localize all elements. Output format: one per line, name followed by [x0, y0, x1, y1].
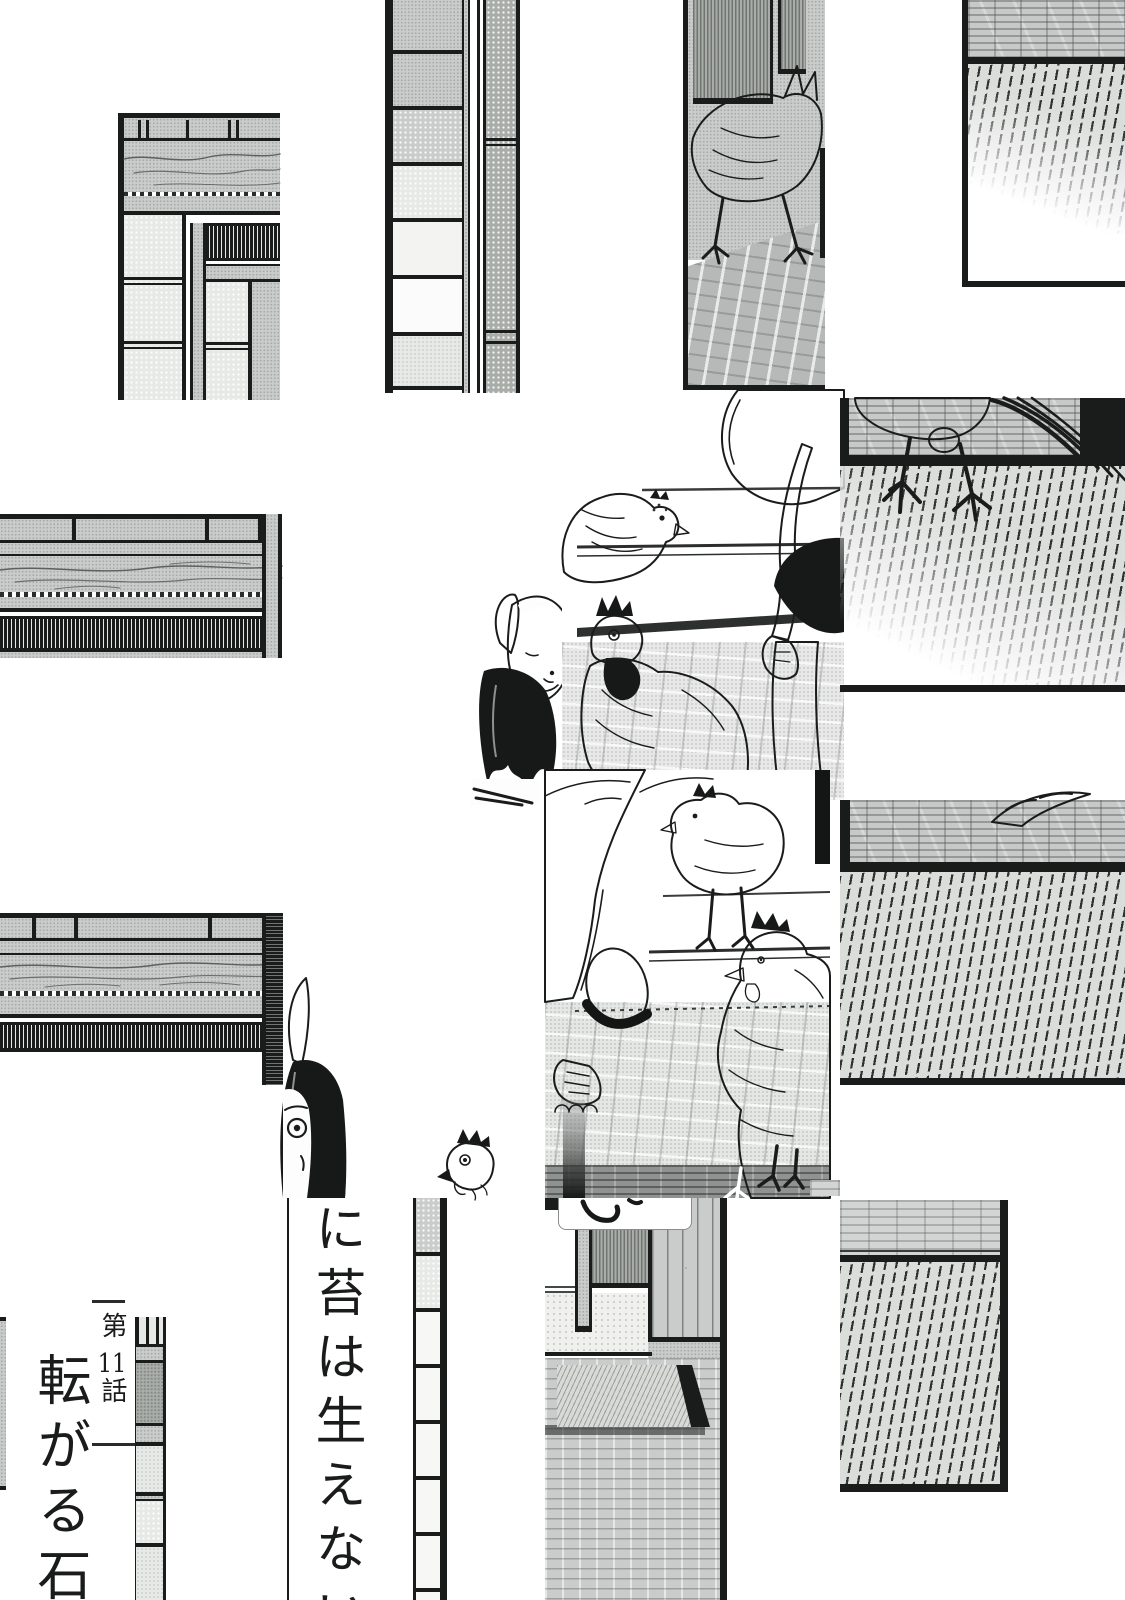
pane-rail: [416, 1476, 440, 1480]
band: [0, 996, 282, 1018]
lattice-band: [0, 616, 282, 652]
rail-band: [0, 519, 282, 540]
band: [206, 266, 280, 282]
chapter-suffix: 話: [97, 1377, 127, 1416]
chicken-legs-figure: [840, 398, 1125, 538]
panel-edge: [962, 281, 1125, 287]
pane: [393, 110, 462, 162]
pane-rail: [486, 138, 516, 141]
pane: [393, 222, 462, 275]
rail-tick: [146, 120, 149, 138]
pillar-rail: [136, 1492, 163, 1496]
rail-tick: [205, 519, 209, 540]
panel-tatami-mat: [840, 800, 1125, 1085]
pillar-rail: [136, 1423, 163, 1426]
scene-figures: [562, 390, 844, 800]
chapter-label: 第11話: [94, 1312, 131, 1462]
pane-column: [124, 215, 186, 400]
pane-stack: [393, 0, 462, 393]
frame-rail: [440, 1198, 447, 1600]
rail-tick: [228, 120, 231, 138]
pane: [393, 279, 462, 332]
pane-rail: [416, 1420, 440, 1424]
panel-shoji-door-lower: [413, 1198, 447, 1600]
border-bar: [840, 1078, 1125, 1085]
tatami-surface: [840, 1262, 1000, 1484]
pane: [393, 0, 462, 50]
pillar-foot: [575, 1326, 592, 1332]
wall-line: [545, 1286, 577, 1288]
pillar-lattice: [136, 1317, 163, 1347]
frame-rail: [477, 0, 480, 393]
panel-edge: [820, 148, 825, 258]
pane-rail: [124, 341, 182, 344]
corner-post: [262, 514, 282, 658]
pillar-fragment: [133, 1317, 166, 1600]
pane: [393, 336, 462, 386]
rail-tick: [186, 120, 189, 138]
rail-band: [124, 113, 280, 141]
panel-edge: [720, 1198, 727, 1600]
panel-veranda-corner: [118, 113, 280, 400]
chapter-prefix: 第: [97, 1312, 127, 1351]
pillar-seg: [136, 1547, 163, 1600]
border-bar: [840, 1484, 1000, 1492]
panel-beam-rail-upper: [0, 514, 282, 658]
panel-tatami-chicken-feet: [840, 398, 1125, 692]
chick-head-fragment: [435, 1125, 505, 1200]
band: [0, 941, 282, 955]
pane-rail: [206, 348, 248, 350]
border-bar: [840, 862, 1125, 872]
pane-rail: [416, 1308, 440, 1312]
pane-rail: [393, 386, 462, 390]
chicken-tail-fragment: [980, 782, 1125, 834]
border-bar: [968, 57, 1125, 64]
pane-rail: [416, 1364, 440, 1368]
scene-figures: [545, 770, 830, 1198]
chapter-title: 転がる石: [20, 1352, 99, 1600]
post-line: [278, 514, 282, 658]
bubble-stroke: [559, 1198, 693, 1230]
lattice-band: [206, 223, 280, 261]
border-bar: [840, 685, 1125, 692]
band: [0, 597, 282, 612]
pane-rail: [124, 283, 182, 285]
rooster-figure: [665, 0, 825, 393]
pillar-seg: [136, 1446, 163, 1492]
pillar-seg: [136, 1501, 163, 1543]
frame-rail: [385, 0, 393, 393]
tatami-border: [840, 1200, 1000, 1255]
band: [0, 543, 282, 556]
chapter-title-panel: 第11話 転がる石: [6, 1279, 135, 1600]
band: [0, 652, 282, 658]
tatami-surface: [968, 64, 1125, 234]
pane-column: [206, 282, 252, 400]
wall-line: [545, 1291, 577, 1293]
wood-grain-band: [124, 141, 280, 192]
girl-face-fragment: [265, 960, 355, 1198]
panel-rooster-pecking: [665, 0, 825, 393]
chapter-number: 11: [97, 1351, 127, 1377]
panel-beam-rail-lower: [0, 913, 282, 1052]
dark-corner: [545, 1198, 558, 1210]
band: [648, 1342, 720, 1358]
wood-grain-band: [0, 556, 282, 592]
panel-genkan-room: [545, 1198, 727, 1600]
pillar-seg: [136, 1363, 163, 1423]
rail-band: [0, 918, 282, 938]
post: [190, 223, 206, 400]
rail-tick: [32, 918, 36, 938]
panel-edge: [962, 0, 968, 287]
pane-stack: [416, 1198, 440, 1600]
frame-rail: [516, 0, 520, 393]
tatami-mat: [557, 1365, 692, 1427]
pane-rail: [486, 330, 516, 333]
panel-edge: [840, 800, 850, 863]
pane: [416, 1256, 440, 1308]
speech-bubble: [558, 1198, 692, 1230]
tatami-border: [968, 0, 1125, 57]
pane-rail: [486, 144, 516, 146]
pane-rail: [416, 1588, 440, 1592]
pane-rail: [416, 1532, 440, 1536]
rail-tick: [72, 519, 76, 540]
rail-tick: [208, 918, 212, 938]
pane-rail: [124, 347, 182, 349]
chapter-rule-top: [92, 1300, 125, 1303]
pane: [393, 166, 462, 218]
pane-rail: [486, 341, 516, 344]
rail-tick: [236, 120, 239, 138]
thin-line: [840, 1250, 1000, 1252]
frame-rail: [462, 0, 470, 393]
pane: [416, 1198, 440, 1252]
pane-rail: [206, 342, 248, 345]
door-panel: [486, 0, 516, 393]
panel-feeding-scene: [545, 770, 830, 1198]
rail-band: [124, 196, 280, 215]
tatami-surface: [840, 872, 1125, 1078]
panel-tatami-mat-lower: [840, 1200, 1008, 1492]
panel-border-line: [287, 1198, 289, 1600]
stray-tile-bit: [810, 1180, 840, 1196]
genkan-floor: [545, 1293, 650, 1355]
lattice-band: [0, 1022, 282, 1052]
pane-rail: [124, 277, 182, 280]
corner-fill: [252, 282, 280, 400]
panel-tatami-corner: [962, 0, 1125, 287]
panel-sitting-scene: [562, 390, 844, 800]
proverb-vertical-text: に苔は生えない: [298, 1202, 372, 1600]
rail-tick: [138, 120, 141, 138]
manga-page[interactable]: に苔は生えない 第11話 転がる石: [0, 0, 1125, 1600]
panel-shoji-door: [385, 0, 520, 393]
wood-grain-band: [0, 955, 282, 991]
pane: [393, 54, 462, 106]
panel-edge: [1000, 1200, 1008, 1492]
panel-edge: [683, 0, 688, 393]
border-bar: [840, 1255, 1000, 1262]
rail-tick: [74, 918, 78, 938]
step-edge: [545, 1352, 652, 1356]
